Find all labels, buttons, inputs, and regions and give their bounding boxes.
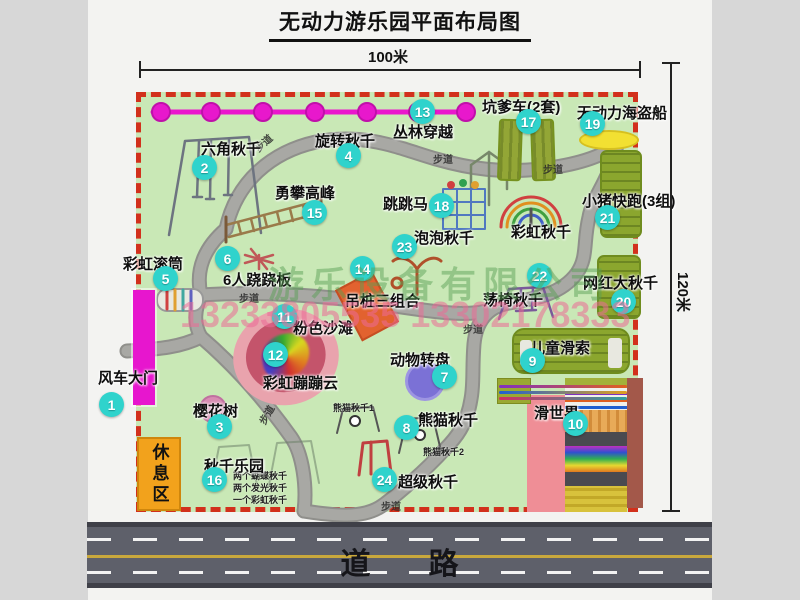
badge-animal-carousel: 7 xyxy=(432,364,457,389)
badge-climbing-peak: 15 xyxy=(302,200,327,225)
dimension-line-height xyxy=(670,63,672,512)
note-swing-park-3: 一个彩虹秋千 xyxy=(233,495,287,506)
watermark-phone: 13233805535 13302178333 xyxy=(180,294,630,336)
label-jungle-crossing: 丛林穿越 xyxy=(393,121,453,142)
slide-world-wall xyxy=(627,378,643,508)
label-panda-swing: 熊猫秋千 xyxy=(418,409,478,430)
label-rainbow-swing: 彩虹秋千 xyxy=(511,221,571,242)
kids-zipline-end-right xyxy=(608,338,622,368)
badge-piggy-run: 21 xyxy=(595,205,620,230)
dimension-tick-right xyxy=(639,61,641,78)
path-label-3: 步道 xyxy=(543,161,563,176)
label-piggy-run: 小猪快跑(3组) xyxy=(582,190,675,211)
road: 道路 xyxy=(87,522,712,588)
note-panda-swing-1: 熊猫秋千1 xyxy=(333,403,374,414)
path-label-2: 步道 xyxy=(433,151,453,166)
dimension-line-width xyxy=(140,69,640,71)
rest-area: 休息区 xyxy=(137,437,181,511)
slide-line-2 xyxy=(499,391,627,394)
dimension-height-label: 120米 xyxy=(673,272,694,312)
badge-cherry-tree: 3 xyxy=(207,414,232,439)
badge-rainbow-roller: 5 xyxy=(153,266,178,291)
label-bubble-swing: 泡泡秋千 xyxy=(414,227,474,248)
badge-slide-world: 10 xyxy=(563,411,588,436)
dimension-tick-left xyxy=(139,61,141,78)
screenshot-root: 无动力游乐园平面布局图 100米 120米 游乐设备有限公司 132338055… xyxy=(0,0,800,600)
path-label-6: 步道 xyxy=(381,498,401,513)
badge-seesaw-6p: 6 xyxy=(215,246,240,271)
slide-line-1 xyxy=(499,385,627,388)
badge-rainbow-bounce-cloud: 12 xyxy=(263,342,288,367)
badge-pirate-ship: 19 xyxy=(580,111,605,136)
badge-pit-cart: 17 xyxy=(516,109,541,134)
label-super-swing: 超级秋千 xyxy=(398,471,458,492)
badge-windmill-gate: 1 xyxy=(99,392,124,417)
badge-jumping-horse: 18 xyxy=(429,193,454,218)
note-swing-park-2: 两个发光秋千 xyxy=(233,483,287,494)
badge-super-swing: 24 xyxy=(372,467,397,492)
note-panda-swing-2: 熊猫秋千2 xyxy=(423,447,464,458)
badge-panda-swing: 8 xyxy=(394,415,419,440)
badge-jungle-crossing: 13 xyxy=(410,99,435,124)
badge-swing-park: 16 xyxy=(202,467,227,492)
slide-line-3 xyxy=(499,397,627,400)
badge-rotary-swing: 4 xyxy=(336,143,361,168)
label-rainbow-bounce-cloud: 彩虹蹦蹦云 xyxy=(263,372,338,393)
page-title: 无动力游乐园平面布局图 xyxy=(269,6,531,42)
dimension-tick-top xyxy=(662,62,680,64)
rest-area-label: 休息区 xyxy=(147,443,172,506)
label-windmill-gate: 风车大门 xyxy=(98,367,158,388)
badge-hexagon-swing: 2 xyxy=(192,155,217,180)
label-climbing-peak: 勇攀高峰 xyxy=(275,182,335,203)
label-jumping-horse: 跳跳马 xyxy=(383,193,428,214)
dimension-width-label: 100米 xyxy=(368,46,408,67)
dimension-tick-bottom xyxy=(662,510,680,512)
badge-kids-zipline: 9 xyxy=(520,348,545,373)
page-title-wrap: 无动力游乐园平面布局图 xyxy=(88,6,712,42)
road-label: 道路 xyxy=(87,539,712,583)
